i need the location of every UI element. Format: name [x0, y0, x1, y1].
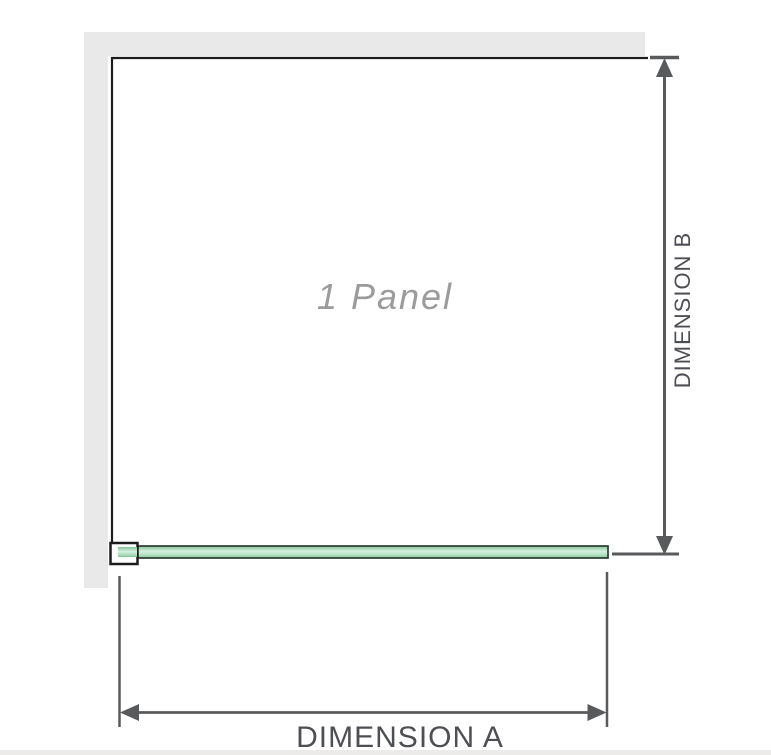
dimension-a-arrowhead-right: [588, 704, 607, 721]
wall-left-band: [84, 32, 108, 588]
panel-count-label: 1 Panel: [235, 274, 535, 320]
wall-top-band: [84, 32, 645, 56]
dimension-b-arrowhead-down: [656, 536, 673, 555]
dimension-a-arrow: [120, 572, 608, 727]
glass-panel: [117, 546, 608, 558]
wall-bracket-glass-slot: [118, 547, 137, 557]
panel-diagram: [0, 0, 771, 755]
dimension-a-arrowhead-left: [120, 704, 139, 721]
dimension-b-arrowhead-up: [656, 58, 673, 77]
dimension-b-label: DIMENSION B: [669, 200, 697, 420]
diagram-canvas: 1 Panel DIMENSION B DIMENSION A: [0, 0, 771, 755]
dimension-a-label: DIMENSION A: [270, 723, 530, 753]
